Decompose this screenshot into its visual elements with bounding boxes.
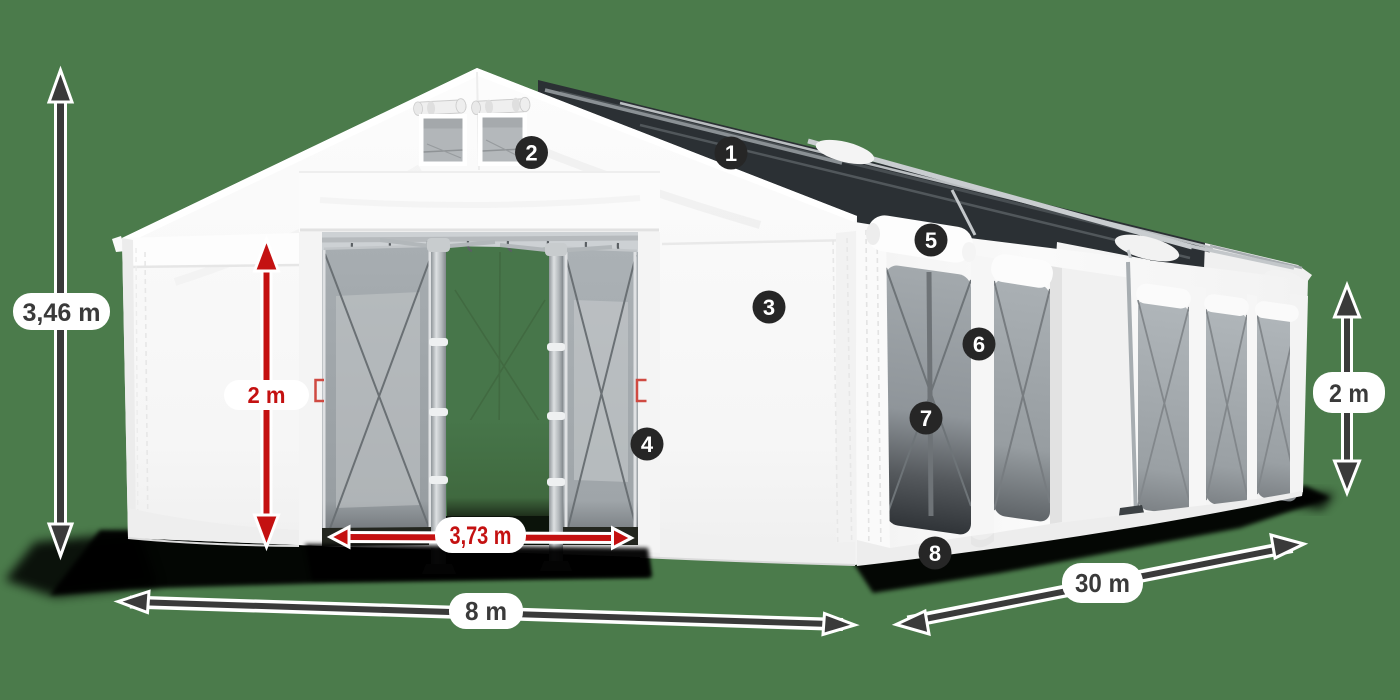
svg-text:3: 3 (763, 295, 775, 320)
svg-text:3,46 m: 3,46 m (23, 299, 101, 327)
svg-text:2 m: 2 m (1329, 380, 1369, 408)
svg-text:3,73 m: 3,73 m (450, 522, 512, 550)
svg-text:6: 6 (973, 332, 985, 357)
svg-text:8 m: 8 m (465, 596, 507, 626)
svg-text:7: 7 (920, 406, 932, 431)
svg-text:1: 1 (725, 141, 737, 166)
svg-text:30 m: 30 m (1075, 568, 1130, 598)
svg-text:5: 5 (925, 228, 937, 253)
svg-text:4: 4 (641, 432, 654, 457)
svg-text:2: 2 (525, 141, 537, 166)
svg-text:2 m: 2 m (248, 382, 286, 408)
svg-text:8: 8 (929, 541, 941, 566)
